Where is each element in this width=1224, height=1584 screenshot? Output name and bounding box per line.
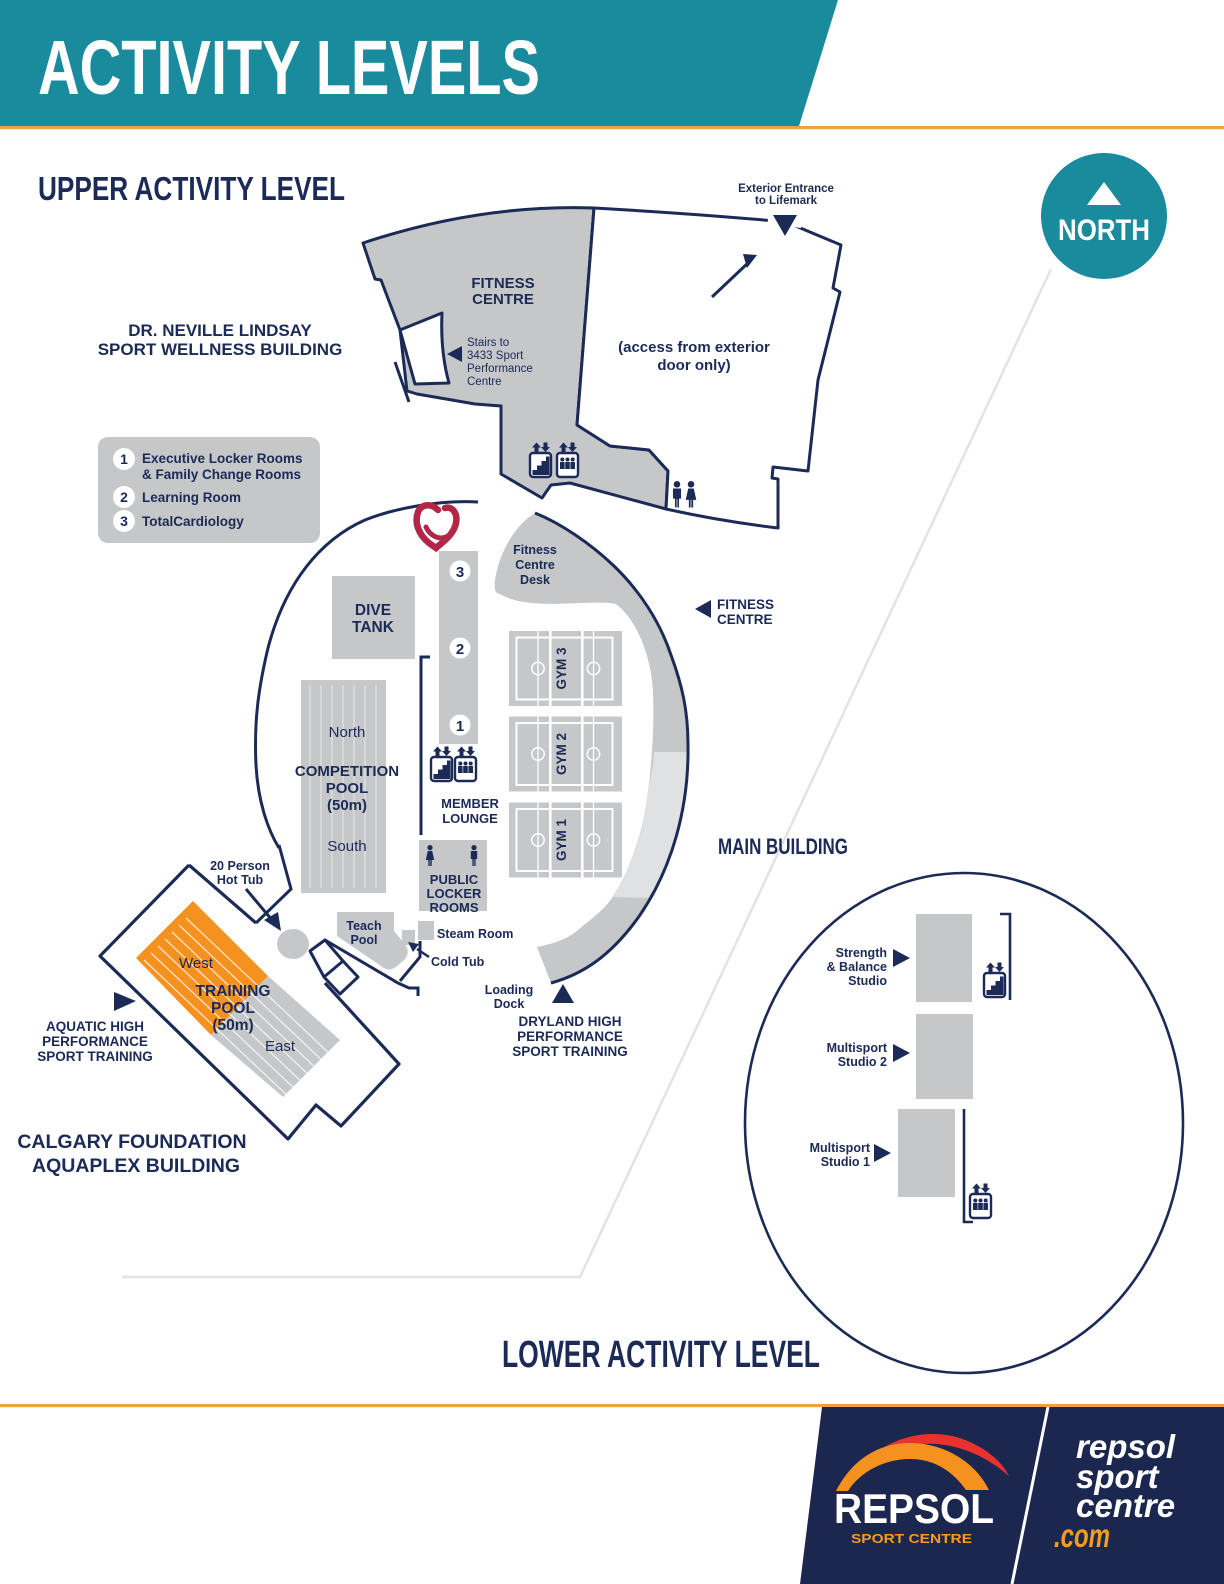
svg-text:2: 2 xyxy=(120,489,128,505)
svg-text:ACTIVITY LEVELS: ACTIVITY LEVELS xyxy=(38,25,540,111)
svg-text:UPPER ACTIVITY LEVEL: UPPER ACTIVITY LEVEL xyxy=(38,170,345,207)
svg-text:to Lifemark: to Lifemark xyxy=(755,195,818,207)
svg-text:MAIN BUILDING: MAIN BUILDING xyxy=(718,834,848,859)
svg-text:LOCKER: LOCKER xyxy=(427,886,483,901)
svg-text:SPORT CENTRE: SPORT CENTRE xyxy=(851,1531,972,1546)
svg-text:FITNESS: FITNESS xyxy=(471,275,534,292)
svg-text:& Family Change Rooms: & Family Change Rooms xyxy=(142,467,301,482)
svg-text:Studio 2: Studio 2 xyxy=(838,1055,887,1069)
svg-text:3433 Sport: 3433 Sport xyxy=(467,350,524,362)
svg-text:TotalCardiology: TotalCardiology xyxy=(142,514,244,529)
svg-text:Studio 1: Studio 1 xyxy=(821,1155,870,1169)
svg-text:& Balance: & Balance xyxy=(827,960,887,974)
svg-text:GYM 1: GYM 1 xyxy=(554,819,569,862)
svg-text:DIVE: DIVE xyxy=(355,602,391,619)
svg-text:door only): door only) xyxy=(657,357,730,374)
svg-text:FITNESS: FITNESS xyxy=(717,597,774,612)
svg-text:1: 1 xyxy=(120,451,128,467)
svg-text:Strength: Strength xyxy=(836,946,887,960)
svg-text:NORTH: NORTH xyxy=(1058,214,1150,247)
svg-text:GYM 3: GYM 3 xyxy=(554,647,569,690)
svg-text:CALGARY FOUNDATION: CALGARY FOUNDATION xyxy=(17,1131,246,1153)
svg-text:West: West xyxy=(179,955,214,972)
svg-text:Learning Room: Learning Room xyxy=(142,490,241,505)
svg-text:AQUAPLEX BUILDING: AQUAPLEX BUILDING xyxy=(32,1155,240,1177)
svg-text:Cold Tub: Cold Tub xyxy=(431,955,485,969)
svg-text:1: 1 xyxy=(456,718,464,735)
svg-text:PUBLIC: PUBLIC xyxy=(430,872,479,887)
svg-text:Hot Tub: Hot Tub xyxy=(217,873,264,887)
svg-text:Stairs to: Stairs to xyxy=(467,337,509,349)
svg-text:SPORT TRAINING: SPORT TRAINING xyxy=(37,1049,153,1064)
svg-text:(50m): (50m) xyxy=(327,797,367,814)
svg-text:2: 2 xyxy=(456,641,464,658)
svg-text:3: 3 xyxy=(120,513,128,529)
svg-text:Teach: Teach xyxy=(346,919,381,933)
svg-text:.com: .com xyxy=(1054,1517,1110,1554)
svg-text:PERFORMANCE: PERFORMANCE xyxy=(42,1034,148,1049)
svg-text:DRYLAND HIGH: DRYLAND HIGH xyxy=(519,1014,622,1029)
svg-text:Performance: Performance xyxy=(467,363,533,375)
svg-text:East: East xyxy=(265,1038,296,1055)
svg-text:Centre: Centre xyxy=(467,376,502,388)
svg-text:TRAINING: TRAINING xyxy=(196,983,271,1000)
svg-text:North: North xyxy=(329,724,366,741)
svg-text:DR. NEVILLE LINDSAY: DR. NEVILLE LINDSAY xyxy=(128,321,312,340)
svg-text:REPSOL: REPSOL xyxy=(834,1485,994,1532)
svg-text:CENTRE: CENTRE xyxy=(472,291,534,308)
svg-text:SPORT WELLNESS BUILDING: SPORT WELLNESS BUILDING xyxy=(98,340,343,359)
svg-text:Studio: Studio xyxy=(848,974,887,988)
svg-text:(50m): (50m) xyxy=(212,1017,253,1034)
svg-text:Centre: Centre xyxy=(515,558,555,572)
svg-text:Fitness: Fitness xyxy=(513,543,557,557)
svg-text:Steam Room: Steam Room xyxy=(437,927,513,941)
svg-text:SPORT TRAINING: SPORT TRAINING xyxy=(512,1044,628,1059)
svg-text:Multisport: Multisport xyxy=(810,1141,871,1155)
svg-text:20 Person: 20 Person xyxy=(210,859,270,873)
svg-text:CENTRE: CENTRE xyxy=(717,612,773,627)
svg-text:Desk: Desk xyxy=(520,573,550,587)
svg-text:Multisport: Multisport xyxy=(827,1041,888,1055)
svg-text:3: 3 xyxy=(456,564,464,581)
svg-text:POOL: POOL xyxy=(211,1000,255,1017)
svg-text:Exterior Entrance: Exterior Entrance xyxy=(738,183,834,195)
svg-text:ROOMS: ROOMS xyxy=(429,900,478,915)
svg-text:GYM 2: GYM 2 xyxy=(554,733,569,775)
svg-text:MEMBER: MEMBER xyxy=(441,796,499,811)
svg-text:TANK: TANK xyxy=(352,619,395,636)
svg-text:POOL: POOL xyxy=(326,780,369,797)
svg-text:PERFORMANCE: PERFORMANCE xyxy=(517,1029,623,1044)
svg-text:COMPETITION: COMPETITION xyxy=(295,763,399,780)
svg-text:LOUNGE: LOUNGE xyxy=(442,811,498,826)
svg-text:AQUATIC HIGH: AQUATIC HIGH xyxy=(46,1019,144,1034)
svg-text:(access from exterior: (access from exterior xyxy=(618,339,770,356)
svg-text:Executive Locker Rooms: Executive Locker Rooms xyxy=(142,451,303,466)
svg-text:LOWER ACTIVITY LEVEL: LOWER ACTIVITY LEVEL xyxy=(502,1334,820,1376)
svg-text:Dock: Dock xyxy=(494,997,525,1011)
svg-text:Loading: Loading xyxy=(485,983,534,997)
svg-text:South: South xyxy=(327,838,366,855)
svg-text:Pool: Pool xyxy=(350,933,377,947)
